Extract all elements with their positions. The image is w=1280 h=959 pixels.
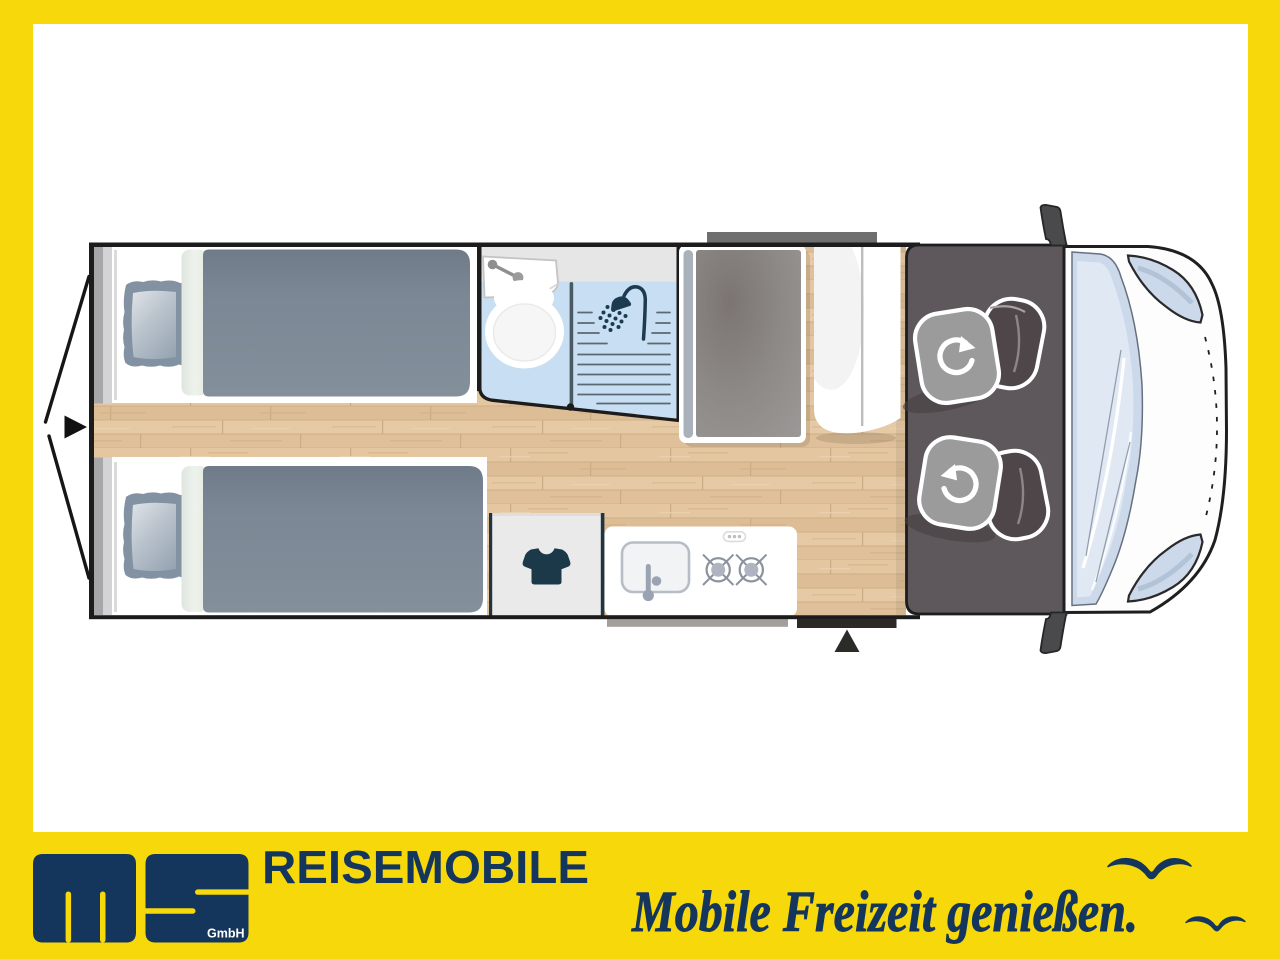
svg-text:REISEMOBILE: REISEMOBILE [262,841,589,893]
svg-text:GmbH: GmbH [207,927,245,941]
svg-text:Mobile Freizeit genießen.: Mobile Freizeit genießen. [631,879,1138,944]
